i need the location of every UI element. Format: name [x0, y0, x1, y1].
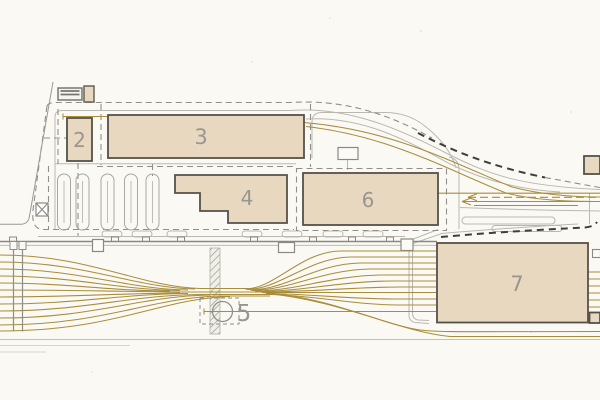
structure-5-label: 5	[237, 301, 252, 327]
small-structure-above-building6	[338, 148, 358, 160]
small-structure-right-edge	[593, 250, 600, 258]
wall-junction-box	[93, 240, 104, 252]
striped-shed	[58, 86, 94, 102]
building-7-label: 7	[510, 272, 523, 296]
annotation-faint-lines	[0, 346, 130, 353]
platform-slots	[58, 174, 160, 230]
small-building-bottom-right	[590, 313, 600, 324]
wall-junction-box	[401, 239, 413, 251]
building-3-label: 3	[194, 125, 207, 149]
wall-junction-box	[279, 243, 295, 253]
building-2-label: 2	[73, 128, 86, 152]
building-4	[175, 175, 287, 223]
site-plan-drawing: 2 3 4 5 6 7	[0, 0, 600, 400]
building-4-label: 4	[241, 186, 254, 210]
building-6-label: 6	[362, 188, 375, 212]
small-building-top-right	[584, 156, 600, 174]
crossing-box	[36, 203, 48, 216]
site-plan-canvas: 2 3 4 5 6 7	[0, 0, 600, 400]
